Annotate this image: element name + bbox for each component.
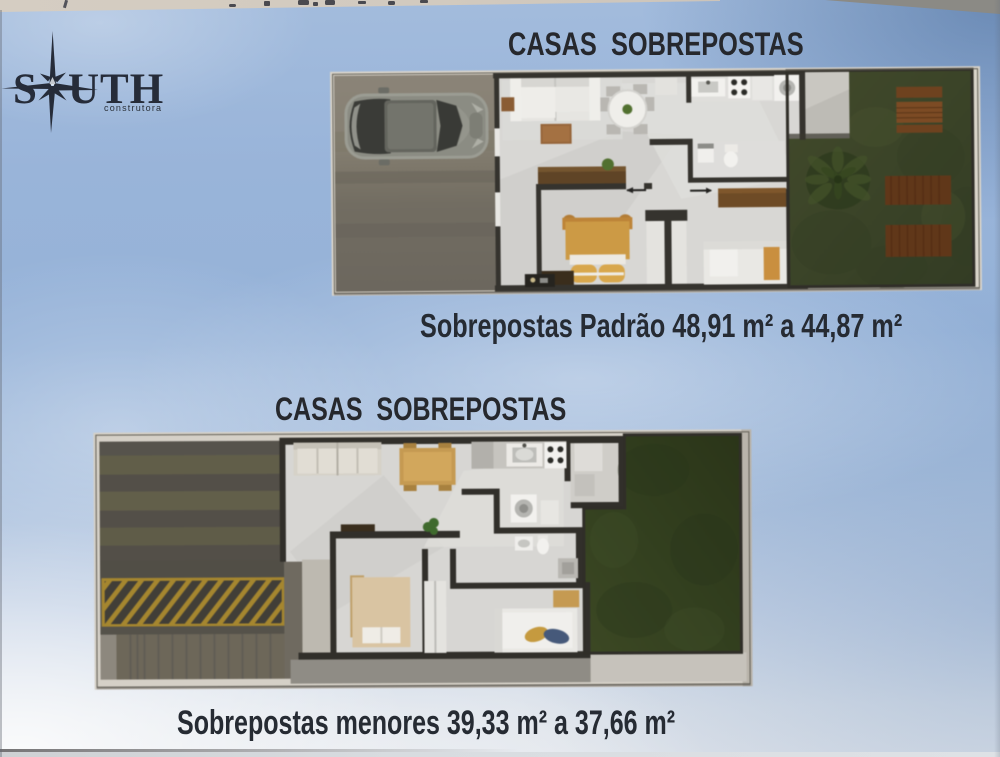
svg-text:construtora: construtora bbox=[104, 103, 162, 113]
svg-text:Sobrepostas menores 39,33 m² a: Sobrepostas menores 39,33 m² a 37,66 m² bbox=[177, 703, 675, 741]
svg-text:Sobrepostas Padrão 48,91 m² a: Sobrepostas Padrão 48,91 m² a 44,87 m² bbox=[420, 307, 902, 344]
svg-text:CASAS SOBREPOSTAS: CASAS SOBREPOSTAS bbox=[275, 392, 566, 427]
svg-text:S: S bbox=[13, 66, 37, 113]
svg-text:CASAS SOBREPOSTAS: CASAS SOBREPOSTAS bbox=[508, 27, 804, 62]
